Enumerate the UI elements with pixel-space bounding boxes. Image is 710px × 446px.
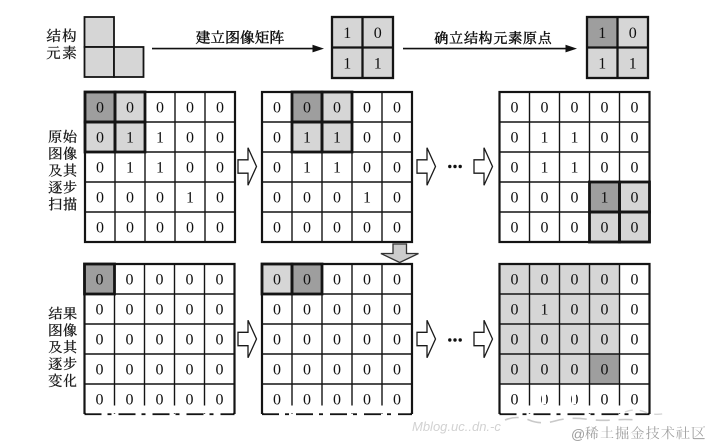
svg-text:0: 0 — [186, 302, 194, 319]
svg-text:0: 0 — [156, 362, 164, 379]
svg-text:0: 0 — [273, 332, 281, 349]
svg-text:0: 0 — [126, 272, 134, 289]
svg-text:0: 0 — [363, 332, 371, 349]
svg-text:0: 0 — [96, 160, 104, 177]
svg-text:0: 0 — [631, 220, 639, 237]
svg-text:@: @ — [571, 426, 585, 442]
svg-text:0: 0 — [511, 160, 519, 177]
svg-text:1: 1 — [363, 190, 371, 207]
svg-text:0: 0 — [186, 220, 194, 237]
svg-text:0: 0 — [631, 362, 639, 379]
svg-text:0: 0 — [126, 332, 134, 349]
svg-text:0: 0 — [303, 220, 311, 237]
svg-text:1: 1 — [598, 25, 606, 42]
svg-text:0: 0 — [541, 272, 549, 289]
svg-text:0: 0 — [333, 362, 341, 379]
svg-text:0: 0 — [374, 25, 382, 42]
svg-text:1: 1 — [156, 130, 164, 147]
svg-text:0: 0 — [96, 362, 104, 379]
svg-text:1: 1 — [343, 55, 351, 72]
svg-text:0: 0 — [541, 220, 549, 237]
svg-text:0: 0 — [216, 220, 224, 237]
svg-text:0: 0 — [631, 302, 639, 319]
svg-text:0: 0 — [156, 190, 164, 207]
svg-text:0: 0 — [631, 190, 639, 207]
svg-text:0: 0 — [96, 190, 104, 207]
svg-text:1: 1 — [303, 130, 311, 147]
svg-text:0: 0 — [571, 100, 579, 117]
svg-text:0: 0 — [363, 220, 371, 237]
svg-text:0: 0 — [216, 130, 224, 147]
svg-text:0: 0 — [333, 302, 341, 319]
svg-text:0: 0 — [571, 302, 579, 319]
svg-text:0: 0 — [571, 362, 579, 379]
svg-text:0: 0 — [541, 362, 549, 379]
svg-text:0: 0 — [156, 100, 164, 117]
svg-text:0: 0 — [363, 302, 371, 319]
svg-text:0: 0 — [363, 362, 371, 379]
svg-text:0: 0 — [273, 302, 281, 319]
svg-text:0: 0 — [156, 302, 164, 319]
svg-text:0: 0 — [273, 220, 281, 237]
svg-text:0: 0 — [631, 160, 639, 177]
svg-text:0: 0 — [601, 362, 609, 379]
svg-text:0: 0 — [96, 272, 104, 289]
svg-text:0: 0 — [186, 272, 194, 289]
svg-text:0: 0 — [511, 362, 519, 379]
svg-text:0: 0 — [216, 332, 224, 349]
svg-text:0: 0 — [571, 220, 579, 237]
svg-text:1: 1 — [598, 55, 606, 72]
svg-text:1: 1 — [186, 190, 194, 207]
svg-text:0: 0 — [393, 332, 401, 349]
svg-text:1: 1 — [571, 160, 579, 177]
svg-text:0: 0 — [126, 190, 134, 207]
svg-text:0: 0 — [393, 100, 401, 117]
svg-text:0: 0 — [629, 25, 637, 42]
svg-text:0: 0 — [216, 362, 224, 379]
svg-text:0: 0 — [541, 332, 549, 349]
svg-text:1: 1 — [333, 130, 341, 147]
svg-text:0: 0 — [393, 190, 401, 207]
svg-text:0: 0 — [186, 130, 194, 147]
svg-text:0: 0 — [333, 272, 341, 289]
svg-text:0: 0 — [303, 362, 311, 379]
svg-text:0: 0 — [333, 220, 341, 237]
svg-text:0: 0 — [393, 220, 401, 237]
svg-text:1: 1 — [126, 160, 134, 177]
svg-text:0: 0 — [303, 190, 311, 207]
svg-text:1: 1 — [629, 55, 637, 72]
svg-text:0: 0 — [571, 332, 579, 349]
svg-text:0: 0 — [541, 100, 549, 117]
svg-text:0: 0 — [96, 220, 104, 237]
svg-text:0: 0 — [393, 160, 401, 177]
svg-text:0: 0 — [631, 100, 639, 117]
svg-text:0: 0 — [511, 220, 519, 237]
svg-text:0: 0 — [601, 272, 609, 289]
svg-text:0: 0 — [96, 100, 104, 117]
svg-text:0: 0 — [631, 272, 639, 289]
svg-text:0: 0 — [303, 302, 311, 319]
svg-text:0: 0 — [333, 100, 341, 117]
svg-text:0: 0 — [186, 160, 194, 177]
svg-text:0: 0 — [273, 130, 281, 147]
svg-text:0: 0 — [511, 332, 519, 349]
svg-text:0: 0 — [601, 332, 609, 349]
svg-text:1: 1 — [333, 160, 341, 177]
svg-text:0: 0 — [601, 100, 609, 117]
svg-text:0: 0 — [273, 100, 281, 117]
svg-text:0: 0 — [393, 302, 401, 319]
svg-text:0: 0 — [186, 100, 194, 117]
svg-text:0: 0 — [216, 190, 224, 207]
svg-text:0: 0 — [273, 160, 281, 177]
svg-text:1: 1 — [156, 160, 164, 177]
svg-text:0: 0 — [156, 272, 164, 289]
svg-text:0: 0 — [393, 362, 401, 379]
svg-text:Mblog.uc..dn.-c: Mblog.uc..dn.-c — [412, 419, 501, 434]
svg-text:0: 0 — [273, 190, 281, 207]
svg-text:0: 0 — [601, 220, 609, 237]
svg-text:0: 0 — [631, 130, 639, 147]
svg-text:0: 0 — [126, 100, 134, 117]
svg-text:0: 0 — [126, 302, 134, 319]
svg-text:0: 0 — [601, 160, 609, 177]
svg-text:0: 0 — [273, 272, 281, 289]
svg-text:0: 0 — [96, 302, 104, 319]
svg-text:0: 0 — [303, 272, 311, 289]
svg-text:0: 0 — [601, 302, 609, 319]
svg-text:0: 0 — [363, 130, 371, 147]
svg-text:1: 1 — [374, 55, 382, 72]
svg-text:0: 0 — [631, 332, 639, 349]
svg-text:0: 0 — [186, 332, 194, 349]
svg-text:1: 1 — [601, 190, 609, 207]
svg-text:0: 0 — [393, 130, 401, 147]
svg-text:1: 1 — [541, 130, 549, 147]
svg-text:1: 1 — [571, 130, 579, 147]
svg-text:0: 0 — [363, 100, 371, 117]
svg-text:0: 0 — [571, 272, 579, 289]
svg-text:0: 0 — [511, 100, 519, 117]
svg-text:0: 0 — [601, 130, 609, 147]
svg-text:0: 0 — [186, 362, 194, 379]
svg-text:0: 0 — [156, 220, 164, 237]
svg-text:0: 0 — [303, 100, 311, 117]
svg-text:0: 0 — [96, 130, 104, 147]
svg-text:1: 1 — [541, 302, 549, 319]
svg-text:0: 0 — [363, 272, 371, 289]
svg-text:0: 0 — [216, 100, 224, 117]
svg-text:0: 0 — [303, 332, 311, 349]
svg-text:0: 0 — [363, 160, 371, 177]
svg-text:1: 1 — [126, 130, 134, 147]
svg-text:0: 0 — [216, 272, 224, 289]
svg-text:0: 0 — [96, 332, 104, 349]
svg-text:0: 0 — [333, 332, 341, 349]
svg-text:0: 0 — [126, 220, 134, 237]
svg-text:0: 0 — [393, 272, 401, 289]
svg-text:0: 0 — [511, 190, 519, 207]
svg-text:0: 0 — [571, 190, 579, 207]
svg-text:0: 0 — [333, 190, 341, 207]
svg-text:0: 0 — [156, 332, 164, 349]
svg-text:1: 1 — [303, 160, 311, 177]
svg-text:0: 0 — [216, 160, 224, 177]
svg-text:0: 0 — [126, 362, 134, 379]
svg-text:1: 1 — [343, 25, 351, 42]
svg-text:0: 0 — [511, 272, 519, 289]
svg-text:1: 1 — [541, 160, 549, 177]
svg-text:0: 0 — [541, 190, 549, 207]
svg-text:0: 0 — [216, 302, 224, 319]
svg-text:0: 0 — [511, 130, 519, 147]
svg-text:0: 0 — [273, 362, 281, 379]
svg-text:0: 0 — [511, 302, 519, 319]
